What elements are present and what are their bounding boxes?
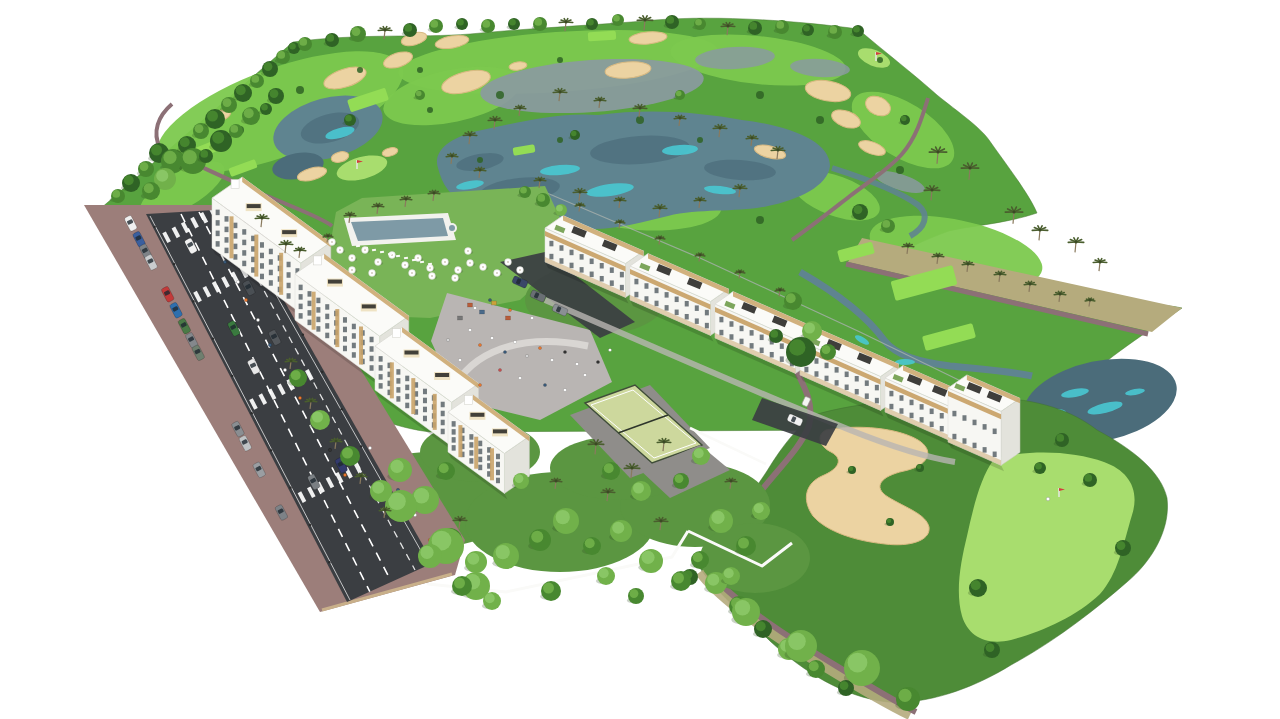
umbrella-pole — [339, 249, 341, 251]
tree-highlight — [112, 190, 120, 198]
playground-equipment — [492, 301, 497, 305]
window — [343, 346, 347, 352]
palm-crown — [739, 187, 742, 190]
street-lamp — [289, 486, 291, 488]
shrub — [417, 67, 423, 73]
window — [760, 335, 764, 341]
tree-round — [670, 571, 691, 591]
tree-highlight — [1035, 463, 1042, 470]
window — [865, 393, 869, 399]
window — [478, 441, 482, 447]
window — [865, 380, 869, 386]
umbrella-pole — [496, 272, 498, 274]
window — [405, 376, 409, 382]
tree-round — [851, 25, 864, 37]
window — [875, 398, 879, 404]
tree-highlight — [299, 38, 307, 46]
tree-highlight — [261, 104, 268, 111]
tree-highlight — [200, 150, 208, 158]
tree-highlight — [372, 482, 384, 494]
palm-crown — [663, 441, 666, 444]
tree-highlight — [673, 573, 684, 584]
palm-crown — [730, 480, 733, 483]
tree-round — [428, 19, 443, 33]
window — [216, 210, 220, 216]
street-lamp — [153, 226, 155, 228]
window — [920, 417, 924, 423]
umbrella-pole — [454, 277, 456, 279]
plaza-person — [563, 350, 566, 353]
tree-highlight — [312, 412, 323, 423]
window — [379, 365, 383, 371]
window — [559, 258, 563, 264]
plaza-person — [503, 350, 506, 353]
window — [242, 250, 246, 256]
street-lamp — [250, 412, 252, 414]
palm-tree — [1093, 259, 1107, 272]
window — [634, 292, 638, 298]
window — [269, 280, 273, 286]
window — [260, 274, 264, 280]
window — [396, 378, 400, 384]
palm-crown — [969, 167, 972, 170]
tree-highlight — [291, 370, 301, 380]
tree-round — [627, 588, 644, 604]
shrub — [557, 57, 563, 63]
tree-highlight — [223, 98, 232, 107]
palm-crown — [599, 99, 602, 102]
palm-crown — [999, 273, 1002, 276]
tree-highlight — [454, 578, 465, 589]
window — [695, 318, 699, 324]
window — [760, 348, 764, 354]
window — [655, 301, 659, 307]
louver-strip — [411, 378, 415, 414]
umbrella-pole — [331, 241, 333, 243]
window — [685, 301, 689, 307]
window — [590, 259, 594, 265]
tree-highlight — [587, 19, 594, 26]
palm-crown — [699, 199, 702, 202]
pedestrian — [343, 473, 346, 476]
tree-highlight — [124, 175, 134, 185]
window — [405, 394, 409, 400]
tree-highlight — [630, 589, 639, 598]
palm-crown — [777, 149, 780, 152]
tree-highlight — [496, 545, 510, 559]
tree-highlight — [404, 24, 412, 32]
tree-round — [480, 19, 495, 33]
window — [225, 237, 229, 243]
tree-highlight — [556, 510, 570, 524]
palm-crown — [479, 169, 482, 172]
street-lamp — [270, 449, 272, 451]
umbrella-pole — [404, 264, 406, 266]
window — [845, 385, 849, 391]
tree-highlight — [854, 205, 863, 214]
tree-highlight — [482, 20, 490, 28]
window — [343, 336, 347, 342]
shrub — [816, 116, 824, 124]
window — [325, 333, 329, 339]
shrub — [427, 107, 433, 113]
louver-strip — [279, 253, 283, 295]
window — [441, 411, 445, 417]
tree-highlight — [754, 503, 764, 513]
shrub — [296, 86, 304, 94]
umbrella-pole — [469, 262, 471, 264]
palm-crown — [644, 19, 647, 22]
louver-strip — [458, 425, 462, 457]
palm-crown — [639, 107, 642, 110]
window — [570, 263, 574, 269]
roof-pergola — [404, 351, 418, 355]
tree-round — [349, 26, 366, 42]
tree-highlight — [735, 600, 750, 615]
window — [469, 442, 473, 448]
window — [940, 413, 944, 419]
tree-highlight — [416, 91, 422, 97]
tree-highlight — [156, 170, 168, 182]
tree-highlight — [457, 19, 464, 26]
window — [325, 314, 329, 320]
tree-round — [596, 567, 615, 585]
window — [260, 253, 264, 258]
window — [423, 407, 427, 413]
window — [396, 369, 400, 375]
plaza-person — [608, 348, 611, 351]
window — [705, 310, 709, 316]
window — [993, 452, 997, 458]
palm-crown — [967, 263, 970, 266]
umbrella-pole — [482, 266, 484, 268]
tree-round — [451, 576, 472, 596]
window — [308, 291, 312, 297]
tree-round — [664, 15, 679, 29]
window — [962, 438, 966, 444]
window — [260, 263, 264, 269]
palm-crown — [1039, 229, 1042, 232]
window — [620, 272, 624, 278]
window — [469, 450, 473, 456]
tree-highlight — [439, 463, 449, 473]
window — [899, 395, 903, 401]
tree-highlight — [666, 16, 674, 24]
palm-crown — [907, 245, 910, 248]
palm-crown — [451, 155, 454, 158]
louver-strip — [359, 326, 363, 364]
tree-highlight — [822, 345, 831, 354]
palm-crown — [285, 243, 288, 246]
window — [600, 276, 604, 282]
tree-highlight — [1084, 474, 1092, 482]
playground-equipment — [506, 316, 511, 320]
window — [233, 254, 237, 260]
umbrella-pole — [444, 261, 446, 263]
tree-highlight — [264, 62, 273, 71]
window — [496, 478, 500, 484]
palm-crown — [719, 127, 722, 130]
window — [308, 310, 312, 316]
window — [814, 358, 818, 364]
window — [379, 374, 383, 380]
window — [316, 298, 320, 304]
tree-highlight — [1117, 541, 1126, 550]
tree-highlight — [641, 551, 654, 564]
roof-pergola — [328, 280, 342, 284]
tree-highlight — [840, 681, 849, 690]
window — [242, 229, 246, 235]
putting-green-large — [959, 453, 1135, 642]
window — [590, 272, 594, 278]
shrub — [896, 166, 904, 174]
tree-round — [690, 551, 709, 569]
window — [299, 285, 303, 291]
window — [634, 279, 638, 285]
window — [750, 330, 754, 336]
palm-crown — [1089, 299, 1092, 302]
tree-highlight — [195, 124, 204, 133]
window — [496, 470, 500, 476]
tree-highlight — [151, 145, 162, 156]
stair-exit — [393, 329, 401, 338]
louver-strip — [490, 448, 494, 480]
tree-highlight — [251, 75, 259, 83]
tree-highlight — [599, 568, 609, 578]
plaza-person — [508, 308, 511, 311]
window — [469, 458, 473, 464]
pedestrian — [236, 280, 239, 283]
window — [225, 216, 229, 222]
palm-crown — [1029, 283, 1032, 286]
window — [620, 285, 624, 291]
window — [644, 296, 648, 302]
window — [269, 270, 273, 276]
plaza-person — [446, 338, 449, 341]
tree-highlight — [430, 20, 438, 28]
tree-highlight — [853, 26, 860, 33]
window — [685, 314, 689, 320]
tree-highlight — [585, 538, 595, 548]
golf-resort-aerial-render — [0, 0, 1280, 719]
window — [370, 337, 374, 343]
tree-highlight — [277, 51, 285, 59]
window — [216, 220, 220, 226]
louver-strip — [335, 309, 339, 347]
palm-crown — [931, 189, 934, 192]
tree-highlight — [848, 653, 868, 673]
window — [269, 249, 273, 255]
street-lamp — [309, 524, 311, 526]
window — [233, 223, 237, 229]
tree-highlight — [556, 205, 563, 212]
window — [370, 365, 374, 371]
roof-pergola — [362, 304, 376, 308]
window — [370, 346, 374, 352]
tree-highlight — [244, 108, 254, 118]
window — [343, 327, 347, 333]
window — [308, 301, 312, 307]
plaza-person — [490, 336, 493, 339]
window — [423, 416, 427, 422]
plaza-person — [458, 358, 461, 361]
window — [910, 413, 914, 419]
palm-crown — [433, 192, 436, 195]
pedestrian — [244, 298, 247, 301]
window — [469, 434, 473, 440]
window — [316, 326, 320, 332]
palm-crown — [659, 207, 662, 210]
street-lamp — [340, 408, 342, 410]
window — [983, 447, 987, 453]
tree-round — [324, 33, 339, 47]
tree-highlight — [467, 553, 479, 565]
tree-round — [532, 17, 547, 31]
window — [549, 241, 553, 247]
pedestrian — [298, 396, 301, 399]
window — [233, 244, 237, 250]
tree-round — [121, 174, 140, 192]
tree-round — [137, 161, 154, 177]
palm-crown — [607, 491, 610, 494]
street-lamp — [231, 375, 233, 377]
shrub — [756, 216, 764, 224]
tree-highlight — [788, 632, 806, 650]
palm-crown — [290, 360, 293, 363]
plaza-person — [513, 340, 516, 343]
window — [600, 263, 604, 269]
shrub — [697, 137, 703, 143]
window — [308, 320, 312, 326]
tree-highlight — [352, 27, 361, 36]
plaza-person — [488, 298, 491, 301]
tree-highlight — [749, 22, 757, 30]
window — [316, 307, 320, 313]
plaza-person — [525, 354, 528, 357]
window — [405, 385, 409, 391]
window — [993, 429, 997, 435]
street-lamp — [173, 263, 175, 265]
tree-highlight — [420, 546, 433, 559]
tree-highlight — [534, 18, 542, 26]
window — [825, 363, 829, 369]
tree-round — [455, 18, 468, 30]
umbrella-pole — [457, 269, 459, 271]
street-lamp — [192, 300, 194, 302]
tree-highlight — [1056, 434, 1064, 442]
window — [675, 297, 679, 303]
shrub — [877, 57, 883, 63]
window — [343, 317, 347, 323]
window — [930, 422, 934, 428]
tree-highlight — [770, 330, 778, 338]
tree-highlight — [789, 339, 806, 356]
tree-round — [110, 189, 125, 203]
palm-crown — [299, 249, 302, 252]
window — [287, 283, 291, 289]
umbrella-pole — [411, 272, 413, 274]
plaza-person — [530, 316, 533, 319]
palm-crown — [1059, 293, 1062, 296]
tree-highlight — [694, 448, 704, 458]
window — [452, 445, 456, 451]
tree-highlight — [144, 183, 154, 193]
window — [580, 267, 584, 273]
window — [719, 317, 723, 323]
palm-crown — [327, 235, 330, 238]
tree-highlight — [695, 19, 702, 26]
palm-crown — [360, 475, 363, 478]
plaza-person — [596, 360, 599, 363]
window — [549, 254, 553, 259]
window — [496, 462, 500, 468]
pedestrian — [368, 446, 371, 449]
window — [845, 372, 849, 378]
window — [580, 254, 584, 260]
tree-highlight — [531, 531, 543, 543]
window — [452, 437, 456, 443]
tree-round — [261, 61, 278, 77]
tree-highlight — [180, 137, 190, 147]
window — [216, 241, 220, 247]
window — [729, 334, 733, 340]
window — [889, 391, 893, 397]
tree-highlight — [289, 43, 296, 50]
window — [316, 317, 320, 323]
tree-round — [464, 551, 487, 573]
aerial-render-stage — [0, 0, 1280, 719]
window — [665, 292, 669, 298]
palm-crown — [595, 443, 598, 446]
window — [973, 420, 977, 426]
umbrella-pole — [364, 249, 366, 251]
window — [379, 356, 383, 362]
window — [665, 305, 669, 311]
tree-highlight — [326, 34, 334, 42]
tree-highlight — [693, 552, 703, 562]
palm-crown — [779, 289, 782, 292]
tree-highlight — [390, 460, 403, 473]
tree-highlight — [675, 474, 684, 483]
palm-crown — [1013, 211, 1016, 214]
tree-round — [844, 650, 880, 686]
palm-tree — [1068, 238, 1083, 253]
window — [940, 426, 944, 432]
window — [287, 262, 291, 268]
window — [559, 245, 563, 251]
palm-trunk — [1039, 230, 1040, 240]
tree-highlight — [140, 162, 149, 171]
palm-crown — [1075, 241, 1078, 244]
tree-highlight — [776, 21, 784, 29]
window — [983, 424, 987, 430]
plaza-person — [563, 388, 566, 391]
window — [260, 242, 264, 248]
window — [962, 415, 966, 421]
tree-highlight — [711, 511, 724, 524]
window — [889, 404, 893, 410]
window — [325, 304, 329, 310]
window — [352, 324, 356, 330]
tree-highlight — [898, 689, 911, 702]
window — [910, 400, 914, 406]
window — [370, 356, 374, 362]
tree-highlight — [537, 194, 545, 202]
tree-round — [297, 37, 312, 51]
umbrella-pole — [377, 261, 379, 263]
palm-crown — [565, 21, 568, 24]
plaza-person — [575, 362, 578, 365]
